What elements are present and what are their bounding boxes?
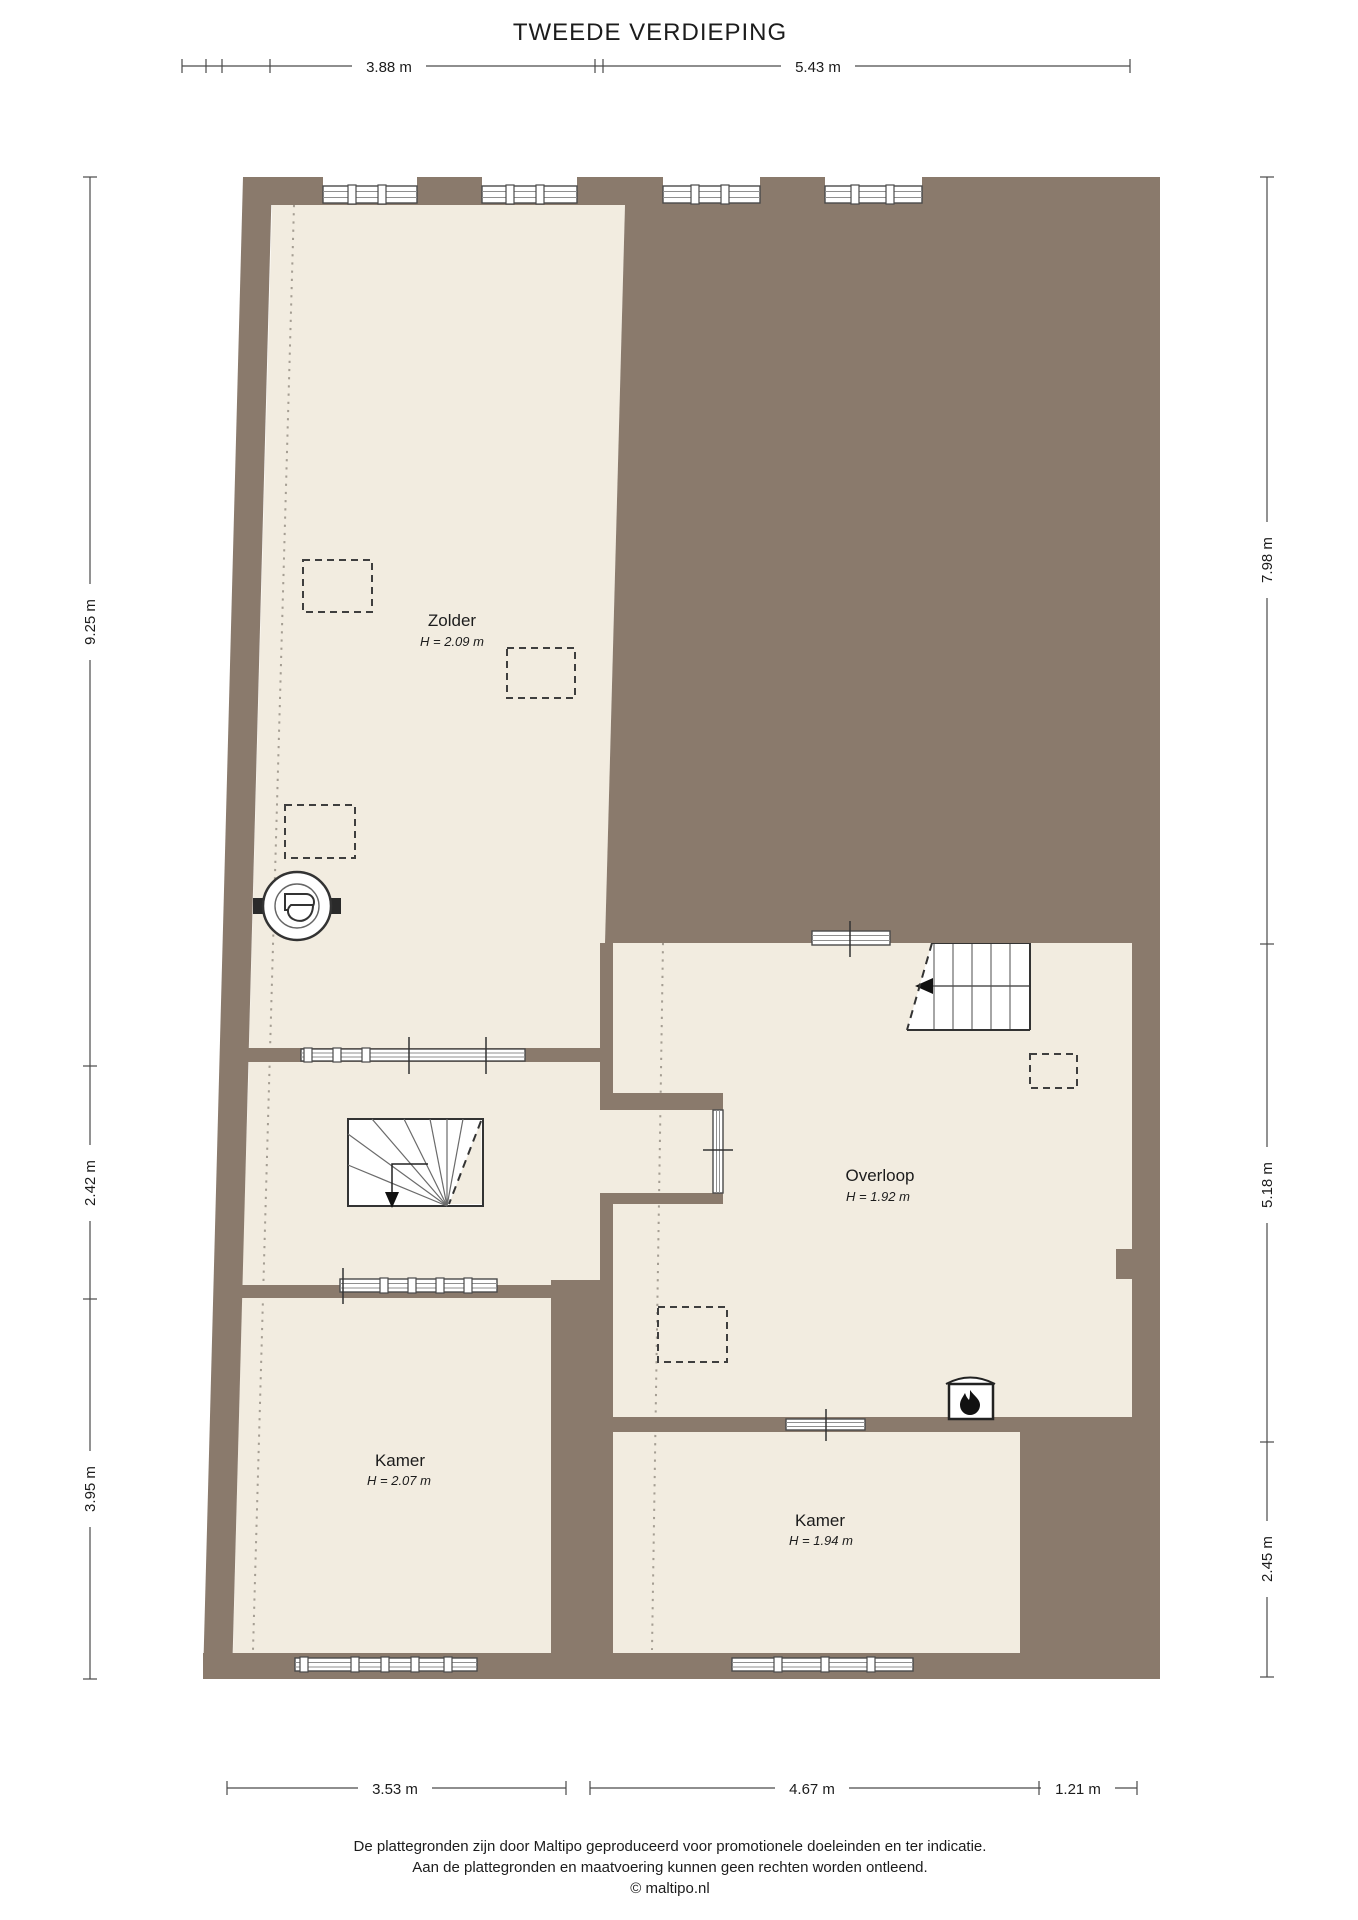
dim-bottom-1: 3.53 m xyxy=(372,1781,418,1798)
dim-right-3: 2.45 m xyxy=(1259,1536,1276,1582)
divider-stub-lower xyxy=(600,1193,723,1204)
overloop-wall-notch xyxy=(1116,1249,1132,1279)
dim-top-2: 5.43 m xyxy=(795,59,841,76)
footer-line-2: Aan de plattegronden en maatvoering kunn… xyxy=(412,1859,927,1876)
kamer-right-label: Kamer xyxy=(795,1511,845,1530)
kamer-right-height-label: H = 1.94 m xyxy=(789,1533,853,1548)
outer-wall-top-corner-right xyxy=(922,177,1160,205)
zolder-label: Zolder xyxy=(428,611,477,630)
bottom-right-mass xyxy=(1020,1417,1160,1679)
dim-top-1: 3.88 m xyxy=(366,59,412,76)
divider-wall-lower xyxy=(600,1204,613,1285)
overloop-height-label: H = 1.92 m xyxy=(846,1189,910,1204)
dimension-top: 3.88 m 5.43 m xyxy=(182,56,1130,76)
page-title: TWEEDE VERDIEPING xyxy=(513,19,787,46)
dim-right-2: 5.18 m xyxy=(1259,1162,1276,1208)
outer-wall-top-corner-left xyxy=(243,177,323,205)
dim-bottom-3: 1.21 m xyxy=(1055,1781,1101,1798)
footer-line-3: © maltipo.nl xyxy=(630,1880,709,1897)
window-top-2 xyxy=(482,185,577,204)
top-wall-pier-1 xyxy=(417,177,482,205)
kamer-left-label: Kamer xyxy=(375,1451,425,1470)
dimension-bottom: 3.53 m 4.67 m 1.21 m xyxy=(227,1778,1137,1798)
window-top-3 xyxy=(663,185,760,204)
zolder-height-label: H = 2.09 m xyxy=(420,634,484,649)
dimension-right: 7.98 m 5.18 m 2.45 m xyxy=(1257,177,1277,1677)
dim-bottom-2: 4.67 m xyxy=(789,1781,835,1798)
floorplan-canvas: TWEEDE VERDIEPING xyxy=(0,0,1358,1920)
window-kamer-right xyxy=(732,1657,913,1672)
window-kamer-left xyxy=(295,1657,477,1672)
divider-stub-upper xyxy=(600,1093,723,1110)
roof-space-mass xyxy=(605,205,1160,943)
window-top-1 xyxy=(323,185,417,204)
kamer-divider-wall xyxy=(551,1280,613,1665)
stove-icon xyxy=(946,1378,995,1420)
dim-left-1: 9.25 m xyxy=(82,599,99,645)
dimension-left: 9.25 m 2.42 m 3.95 m xyxy=(80,177,100,1679)
top-wall-pier-2 xyxy=(577,177,663,205)
overloop-label: Overloop xyxy=(846,1166,915,1185)
stairs-left xyxy=(348,1119,483,1208)
kamer-left-height-label: H = 2.07 m xyxy=(367,1473,431,1488)
dim-right-1: 7.98 m xyxy=(1259,537,1276,583)
floorplan-page: TWEEDE VERDIEPING xyxy=(0,0,1358,1920)
footer-disclaimer: De plattegronden zijn door Maltipo gepro… xyxy=(354,1838,987,1897)
footer-line-1: De plattegronden zijn door Maltipo gepro… xyxy=(354,1838,987,1855)
dim-left-3: 3.95 m xyxy=(82,1466,99,1512)
outer-wall-right xyxy=(1132,943,1160,1417)
divider-wall-upper xyxy=(600,943,613,1093)
top-wall-pier-3 xyxy=(760,177,825,205)
window-top-4 xyxy=(825,185,922,204)
dim-left-2: 2.42 m xyxy=(82,1160,99,1206)
